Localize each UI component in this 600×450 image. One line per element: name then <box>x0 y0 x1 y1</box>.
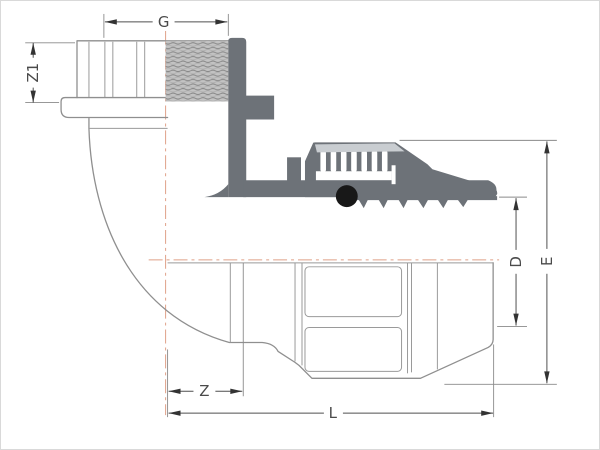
thread-hatch <box>166 41 229 102</box>
compression-nut-windows <box>305 267 402 372</box>
dim-label-d: D <box>507 256 525 267</box>
dimension-z1: Z1 <box>23 43 75 103</box>
dimension-d: D <box>497 197 527 326</box>
o-ring <box>336 185 358 207</box>
nut-window-lower <box>305 328 402 372</box>
elbow-corner-section <box>204 184 228 197</box>
dimension-z: Z <box>168 263 244 417</box>
dimension-l: L <box>169 344 494 422</box>
flange-outline <box>61 98 168 118</box>
elbow-fitting-drawing: G Z1 E D <box>1 1 599 449</box>
dim-label-l: L <box>329 404 338 422</box>
body-section-cut <box>204 38 497 208</box>
stop-ridge-section <box>287 157 301 181</box>
dim-label-z1: Z1 <box>24 63 42 83</box>
technical-drawing-canvas: G Z1 E D <box>0 0 600 450</box>
port-wall-section <box>228 38 274 197</box>
dim-label-g: G <box>158 13 170 31</box>
dim-label-z: Z <box>199 382 209 400</box>
nut-highlight <box>315 143 405 152</box>
dim-label-e: E <box>538 257 556 266</box>
nut-window-upper <box>305 267 402 317</box>
